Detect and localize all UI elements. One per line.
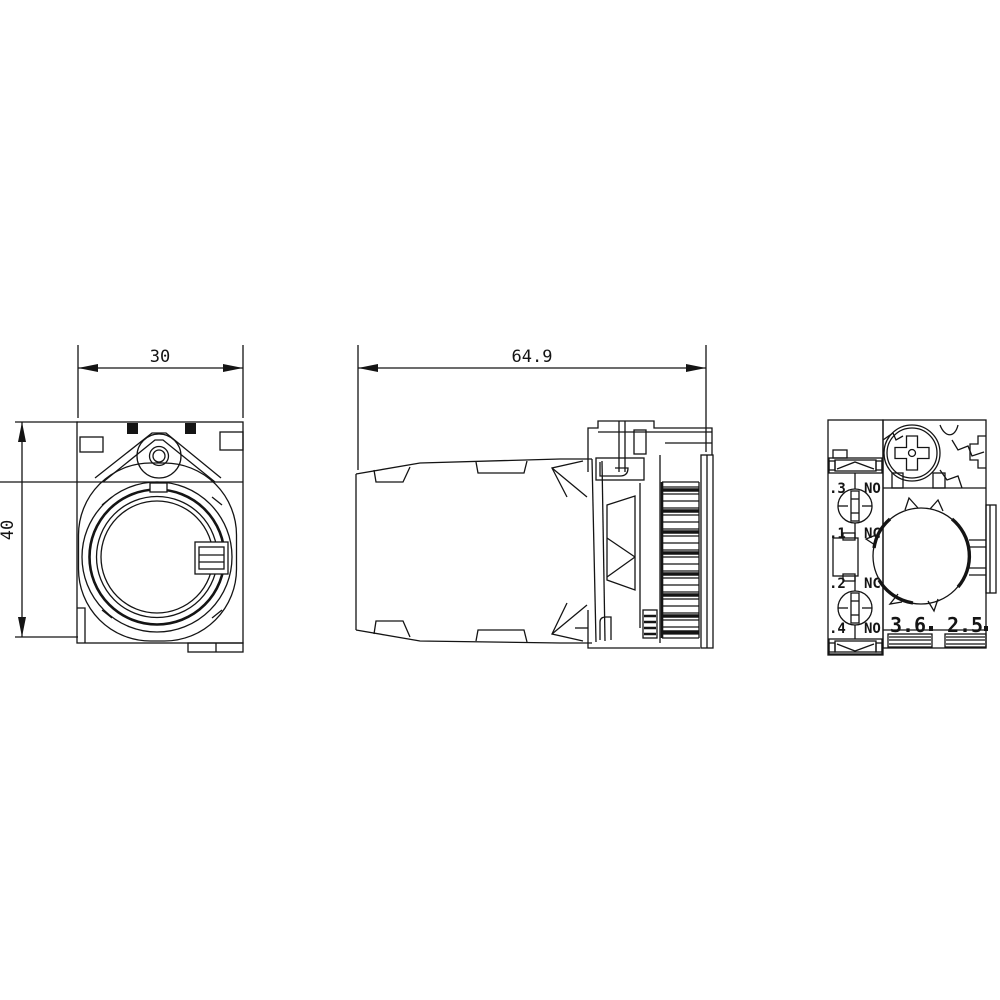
terminal-type-4: NO [864, 621, 881, 637]
front-width-value: 30 [150, 347, 170, 367]
terminal-id-3: .2 [829, 576, 846, 592]
thread-ribs-thin [663, 487, 699, 634]
thread-ribs-thick [663, 490, 699, 632]
rear-flange [701, 455, 713, 648]
arrowhead-left [78, 364, 98, 372]
terminal-id-2: .1 [829, 526, 846, 542]
threaded-section [662, 482, 699, 638]
side-view: 64.9 [356, 345, 713, 648]
front-top-strip [77, 423, 243, 482]
terminal-id-1: .3 [829, 481, 846, 497]
arrowhead-right [686, 364, 706, 372]
terminal-pocket [833, 538, 858, 576]
front-mounting-ring [79, 463, 237, 641]
arrowhead-left [358, 364, 378, 372]
top-latch [588, 421, 712, 480]
drawing-sheet: 30 40 [0, 0, 1000, 1000]
plunger-boot [866, 498, 969, 611]
actuator-body [356, 459, 605, 643]
mounting-square-right [185, 423, 196, 434]
keying-notch [150, 483, 167, 492]
front-view: 30 40 [0, 345, 243, 652]
arrowhead-up [18, 422, 26, 442]
arrowhead-right [223, 364, 243, 372]
rear-view: .3 NO .1 NC .2 NC .4 NO [828, 420, 996, 655]
terminal-type-1: NO [864, 481, 881, 497]
terminal-id-4: .4 [829, 621, 846, 637]
side-length-value: 64.9 [512, 347, 553, 367]
front-height-dimension: 40 [0, 422, 78, 637]
front-width-dimension: 30 [78, 345, 243, 418]
dimension-drawing: 30 40 [0, 0, 1000, 1000]
side-guide-rail [969, 505, 996, 593]
side-length-dimension: 64.9 [358, 345, 706, 470]
rear-bottom-terminals: 3.6 2.5 [883, 613, 988, 647]
latch-wedges [552, 461, 587, 641]
contact-terminal-strip: .3 NO .1 NC .2 NC .4 NO [828, 420, 883, 655]
terminal-screw-bottom [838, 591, 872, 625]
rear-holder-block: 3.6 2.5 [866, 420, 996, 648]
housing-contours [883, 425, 986, 488]
arrowhead-down [18, 617, 26, 637]
front-height-value: 40 [0, 520, 18, 540]
mounting-square-left [127, 423, 138, 434]
